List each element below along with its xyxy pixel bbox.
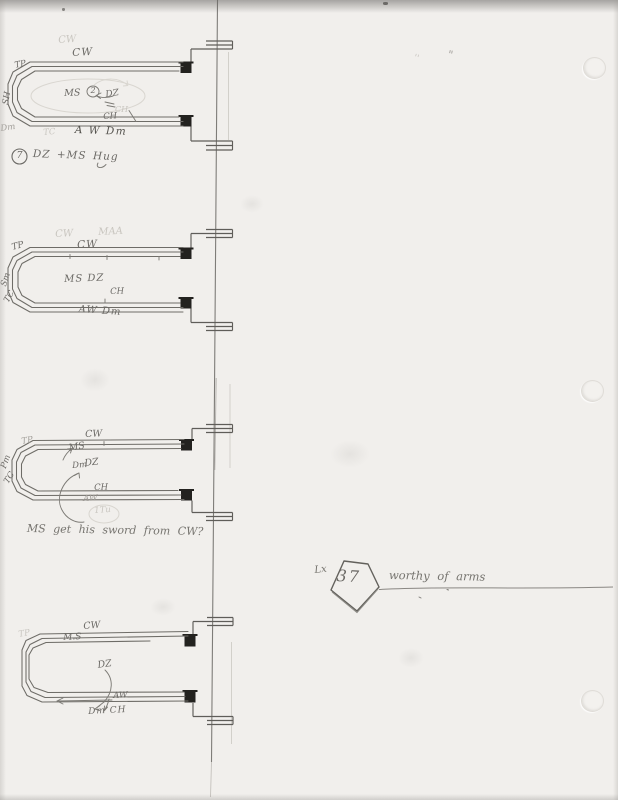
ghost-strokes: [31, 79, 145, 523]
ink-speck: [62, 8, 65, 11]
loop3-sweep-arrow: [59, 473, 84, 522]
smudge: [398, 648, 424, 668]
loop2-line-label: CH: [110, 288, 124, 297]
loop4-top-label: CW: [83, 621, 101, 632]
loop2-ghost-top-label: CW: [55, 229, 73, 240]
smudge: [240, 195, 264, 213]
loop4-bottom-bracket: [193, 703, 233, 725]
loop1-dz-scribble: [105, 102, 115, 107]
terminal-blocks: [179, 62, 198, 703]
loop3-mover-label: Dm: [72, 461, 87, 471]
loop1-ch-slash: [129, 111, 136, 122]
loop2-bottom-bracket: [191, 309, 233, 331]
loop3-bottom-label: AW: [83, 494, 98, 503]
smudge: [330, 440, 370, 468]
smudge: [80, 368, 110, 392]
loop1-top-label: CW: [72, 47, 93, 59]
loop1-partner-label: DZ: [105, 89, 120, 100]
punch-hole-middle: [581, 380, 604, 402]
loop2-top-bracket: [191, 230, 233, 249]
cue-prefix-label: Lx: [314, 565, 327, 576]
loop3-handwritten-note: MS get his sword from CW?: [27, 523, 204, 537]
loop4-second-label: M.S: [63, 633, 82, 643]
loop3-bottom-bracket: [192, 501, 233, 521]
loop3-ghost-circled-label: 1Tu: [94, 506, 111, 516]
loop1-center-label: MS: [64, 88, 81, 98]
punch-hole-bottom: [581, 690, 604, 712]
loop1-ghost-top-label: CW: [58, 35, 77, 46]
loop3-line-label: CH: [94, 484, 108, 493]
ink-speck: [383, 2, 388, 5]
cue-number-label: 37: [336, 568, 361, 585]
cue-leader-line: [379, 587, 613, 590]
loop1-hug-tail: [97, 163, 106, 168]
loop1-caption: DZ +MS Hug: [33, 149, 119, 162]
loop2-center-label: MS DZ: [64, 274, 105, 285]
loop4-line-label: AW: [113, 691, 128, 700]
cue-title-label: worthy of arms: [389, 570, 486, 583]
loop4-aw-arrow: [57, 698, 112, 704]
cue-title-dots: [419, 590, 449, 599]
loop1-ghost-bottom-mid-label: TC: [43, 128, 56, 138]
scanned-sketch-page: CW CW TP SH MS 2 DZ CH CH A W Dm Dm TC 7…: [0, 0, 618, 800]
loop1-top-bracket: [191, 41, 233, 63]
loop3-top-bracket: [192, 425, 233, 440]
loop1-side-label: SH: [2, 91, 13, 106]
smudge: [150, 598, 176, 616]
loop1-circled-number: 2: [91, 87, 96, 95]
wall-brackets: [191, 41, 233, 725]
loop4-corner-label: TP: [18, 629, 31, 639]
loop1-caption-number: 7: [17, 151, 23, 161]
loop2-top-label: CW: [77, 239, 98, 250]
punch-hole-top: [583, 57, 606, 79]
loop3-corner-label: TP: [21, 436, 34, 446]
loop1-bottom-bracket: [191, 127, 233, 151]
sketch-strokes: [0, 0, 618, 800]
loop4-partner-label: DZ: [97, 659, 112, 670]
loop1-line-label: CH: [103, 112, 117, 121]
loop2-ghost-top-label2: MAA: [98, 227, 123, 238]
loop3-top-label: CW: [85, 429, 102, 439]
center-wall-line: [211, 0, 232, 797]
loop1-corner-label: TP: [14, 60, 27, 71]
loop1-ghost-bottom-left-label: Dm: [0, 123, 16, 133]
loop1-bottom-label: A W Dm: [75, 125, 128, 137]
